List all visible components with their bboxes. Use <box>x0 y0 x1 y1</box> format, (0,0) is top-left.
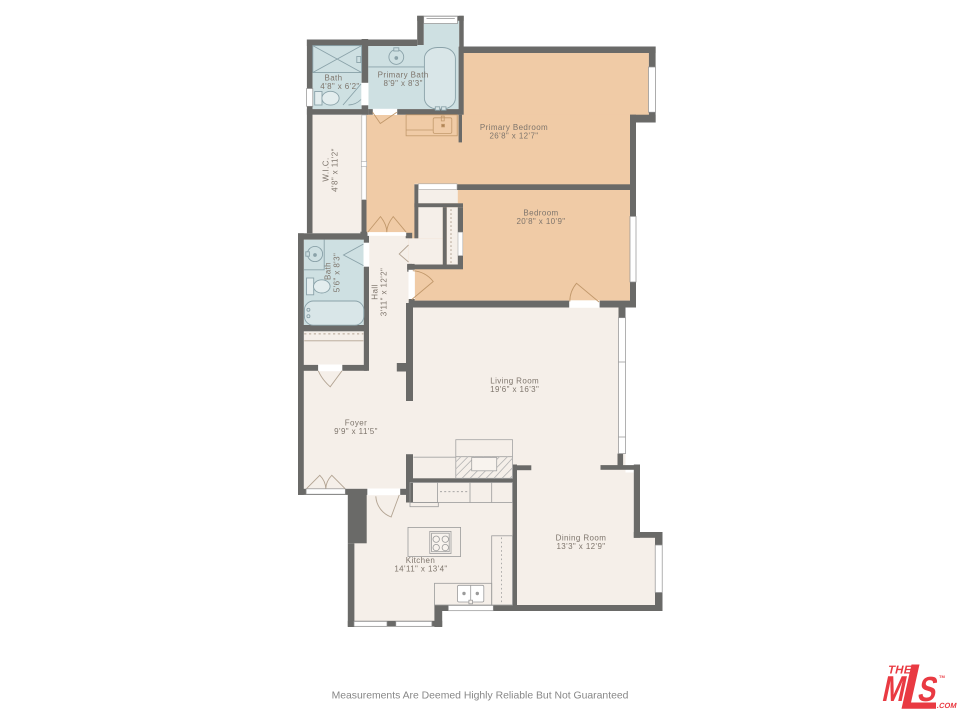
svg-text:4'8" x 11'2": 4'8" x 11'2" <box>331 148 340 192</box>
svg-text:3'11" x 12'2": 3'11" x 12'2" <box>379 268 388 316</box>
svg-text:.COM: .COM <box>936 701 957 710</box>
svg-text:13'3" x 12'9": 13'3" x 12'9" <box>556 542 605 551</box>
svg-text:5'6" x 8'3": 5'6" x 8'3" <box>333 253 342 292</box>
svg-text:W.I.C.: W.I.C. <box>321 157 330 181</box>
svg-text:8'9" x 8'3": 8'9" x 8'3" <box>384 79 423 88</box>
svg-text:4'8" x 6'2": 4'8" x 6'2" <box>320 82 359 91</box>
svg-text:26'8" x 12'7": 26'8" x 12'7" <box>489 131 538 140</box>
svg-text:Measurements Are Deemed Highly: Measurements Are Deemed Highly Reliable … <box>332 690 629 701</box>
svg-text:14'11" x 13'4": 14'11" x 13'4" <box>394 564 447 573</box>
svg-text:9'9" x 11'5": 9'9" x 11'5" <box>334 427 378 436</box>
svg-text:20'8" x 10'9": 20'8" x 10'9" <box>516 217 565 226</box>
svg-text:Bath: Bath <box>324 262 333 280</box>
svg-text:TM: TM <box>939 674 945 679</box>
svg-text:19'6" x 16'3": 19'6" x 16'3" <box>490 385 539 394</box>
